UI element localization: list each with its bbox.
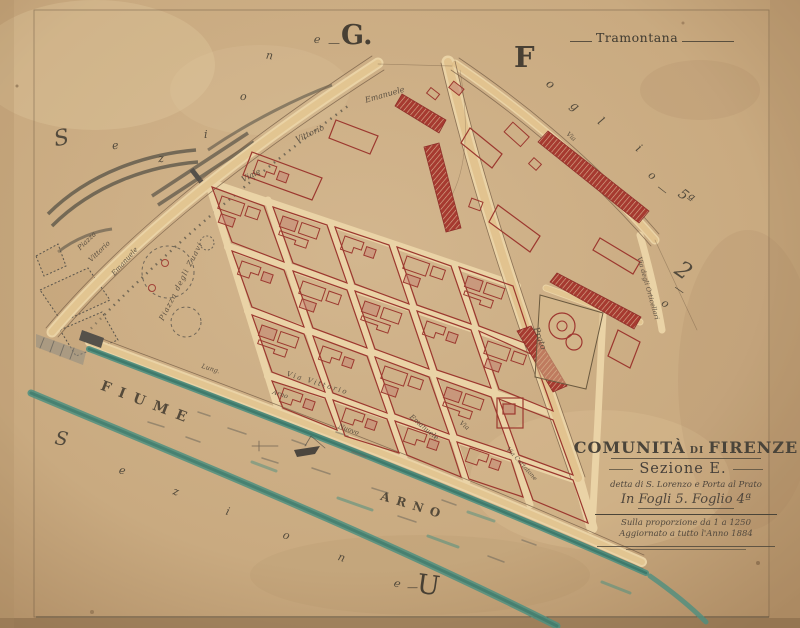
map-sheet: Tramontana S e z i o n e — G. F o g l i …	[0, 0, 800, 628]
section-line-group: Sezione E.	[584, 461, 788, 477]
compass-label-group: Tramontana	[570, 30, 734, 45]
updated-line: Aggiornato a tutto l'Anno 1884	[597, 529, 775, 540]
flourish-line	[638, 508, 734, 509]
section-subtitle: detta di S. Lorenzo e Porta al Prato	[584, 480, 788, 490]
scale-box: Sulla proporzione da 1 a 1250 Aggiornato…	[595, 514, 777, 544]
sheet-number-line: In Fogli 5. Foglio 4ª	[584, 492, 788, 507]
margin-letter: e	[111, 139, 119, 153]
margin-letter: e	[313, 33, 321, 47]
compass-label: Tramontana	[592, 30, 682, 45]
margin-letter-big: F	[514, 40, 535, 74]
margin-dash: —	[328, 36, 340, 50]
margin-letter: o	[239, 90, 247, 104]
margin-letter-big: U	[415, 569, 442, 603]
rule-line	[570, 41, 592, 42]
title-block: COMUNITÀ DI FIRENZE Sezione E. detta di …	[584, 438, 788, 550]
flourish-line	[626, 549, 746, 550]
title-word: COMUNITÀ	[574, 438, 686, 457]
scale-line: Sulla proporzione da 1 a 1250	[597, 518, 775, 529]
title-word: DI	[690, 445, 705, 456]
rule-line	[609, 469, 633, 470]
map-title: COMUNITÀ DI FIRENZE	[584, 438, 788, 457]
title-word: FIRENZE	[708, 438, 798, 457]
rule-line	[733, 469, 763, 470]
margin-letter: z	[157, 152, 164, 165]
margin-letter-big: G.	[341, 20, 373, 51]
rule-line	[682, 41, 734, 42]
flourish-line	[611, 458, 761, 459]
section-label: Sezione E.	[639, 461, 726, 477]
margin-letter: i	[204, 128, 208, 141]
flourish-line	[597, 546, 775, 547]
